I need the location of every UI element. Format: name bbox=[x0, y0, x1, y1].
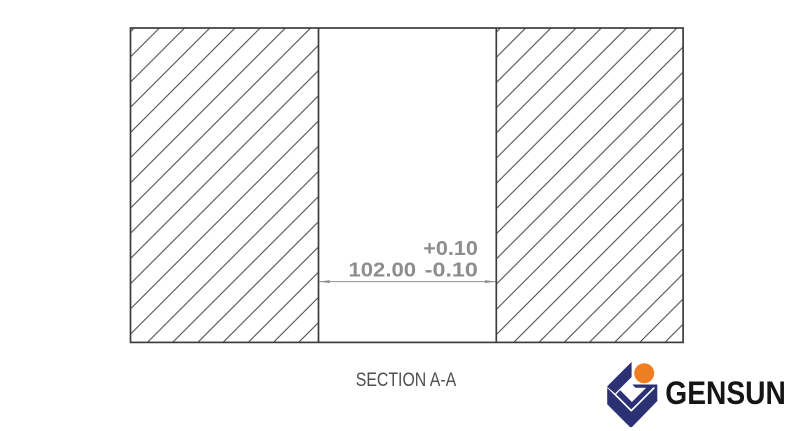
svg-text:102.00: 102.00 bbox=[349, 259, 417, 282]
svg-text:SECTION A-A: SECTION A-A bbox=[356, 370, 457, 391]
svg-text:+0.10: +0.10 bbox=[423, 237, 478, 260]
svg-text:GENSUN: GENSUN bbox=[665, 375, 786, 411]
svg-text:-0.10: -0.10 bbox=[425, 259, 478, 282]
